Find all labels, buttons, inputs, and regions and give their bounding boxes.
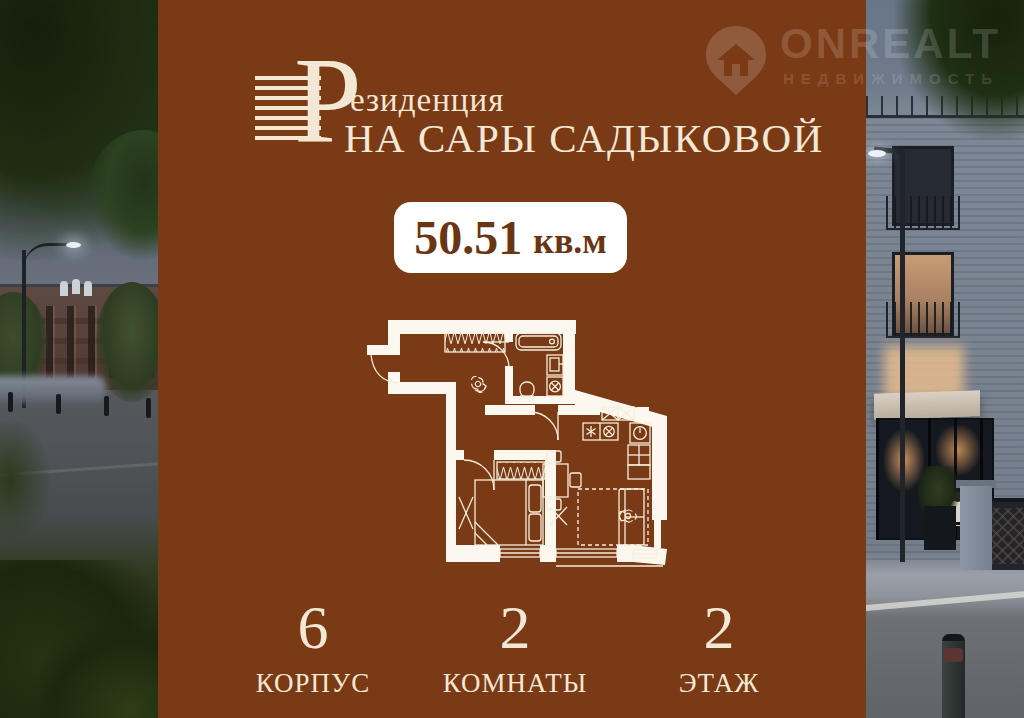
road-marking bbox=[860, 591, 1024, 612]
real-estate-poster: Р езиденция НА САРЫ САДЫКОВОЙ 50.51 кв.м bbox=[0, 0, 1024, 718]
floor-plan-drawing bbox=[360, 312, 700, 584]
map-pin-house-icon bbox=[700, 22, 772, 100]
bollard bbox=[104, 396, 109, 416]
stat-building-value: 6 bbox=[218, 596, 408, 658]
plan-walls bbox=[367, 320, 667, 565]
washbasin-icon bbox=[520, 382, 534, 397]
washing-machine-icon bbox=[547, 377, 563, 396]
kitchen-door bbox=[530, 412, 558, 440]
brown-panel: Р езиденция НА САРЫ САДЫКОВОЙ 50.51 кв.м bbox=[158, 0, 866, 718]
dormer bbox=[60, 281, 68, 296]
bollard bbox=[56, 394, 61, 414]
brand-watermark: ONREALT НЕДВИЖИМОСТЬ bbox=[700, 20, 1000, 96]
stat-building-label: КОРПУС bbox=[218, 668, 408, 699]
planter-box bbox=[924, 506, 956, 550]
fridge-cabinets bbox=[628, 445, 650, 479]
hall-wardrobe bbox=[445, 333, 505, 352]
stat-floor-label: ЭТАЖ bbox=[624, 668, 814, 699]
bollard bbox=[8, 392, 13, 412]
background-photo-right-facade bbox=[866, 0, 1024, 718]
person-figure-hall bbox=[468, 374, 488, 395]
brand-name: ONREALT bbox=[780, 20, 1001, 68]
stat-rooms-label: КОМНАТЫ bbox=[420, 668, 610, 699]
dormer bbox=[84, 281, 92, 296]
street-lamp-light bbox=[868, 150, 886, 157]
background-photo-left-street bbox=[0, 0, 158, 718]
stove-icon bbox=[630, 423, 650, 443]
double-bed bbox=[475, 480, 543, 545]
stat-rooms-value: 2 bbox=[420, 596, 610, 658]
bush bbox=[0, 420, 50, 540]
street-lamp-pole bbox=[900, 150, 905, 562]
bollard-red-band bbox=[944, 648, 963, 662]
stat-floor-value: 2 bbox=[624, 596, 814, 658]
title-line2: НА САРЫ САДЫКОВОЙ bbox=[344, 114, 824, 162]
stat-building: 6 КОРПУС bbox=[218, 596, 408, 699]
bollard-cap bbox=[942, 634, 965, 641]
area-badge: 50.51 кв.м bbox=[394, 202, 627, 273]
balcony-railing bbox=[886, 196, 960, 230]
stat-floor: 2 ЭТАЖ bbox=[624, 596, 814, 699]
bathtub bbox=[516, 333, 561, 350]
area-value: 50.51 bbox=[414, 214, 522, 262]
bollard bbox=[146, 398, 151, 418]
lattice-pattern bbox=[992, 508, 1024, 564]
balcony-railing bbox=[886, 302, 960, 338]
moving-car bbox=[0, 376, 106, 403]
cafe-awning bbox=[874, 390, 980, 420]
bedroom-door bbox=[464, 460, 494, 490]
bathroom-cabinet bbox=[547, 355, 563, 375]
dormer bbox=[72, 279, 80, 294]
area-unit: кв.м bbox=[533, 217, 607, 259]
person-figure-sofa bbox=[619, 509, 637, 523]
sofa bbox=[619, 489, 644, 545]
street-lamp-light bbox=[66, 242, 81, 248]
brand-tagline: НЕДВИЖИМОСТЬ bbox=[783, 70, 999, 87]
bedroom-wardrobe bbox=[497, 462, 545, 479]
bollard bbox=[942, 634, 965, 718]
kitchen-counter bbox=[583, 423, 618, 440]
fence-pillar bbox=[960, 486, 992, 570]
stat-rooms: 2 КОМНАТЫ bbox=[420, 596, 610, 699]
